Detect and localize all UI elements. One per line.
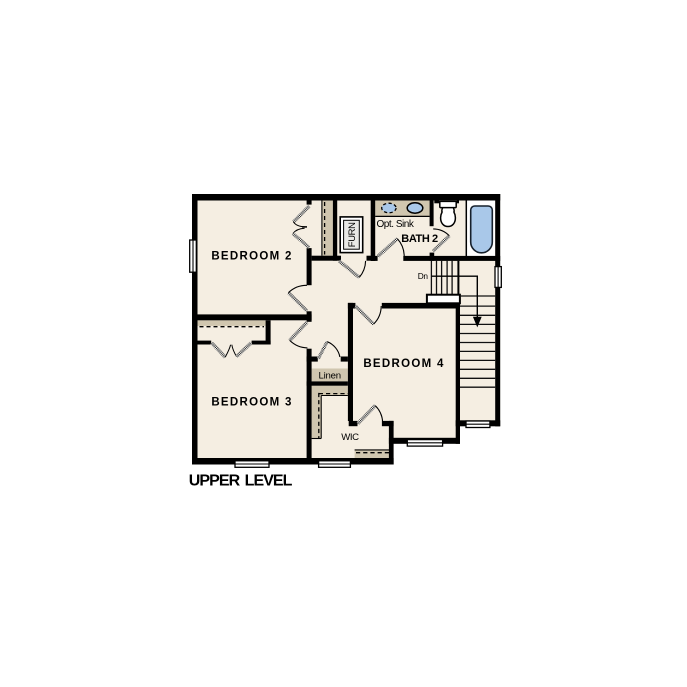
svg-text:Opt. Sink: Opt. Sink [377,219,415,230]
svg-text:UPPER LEVEL: UPPER LEVEL [189,473,293,490]
svg-text:FURN: FURN [346,222,357,247]
svg-text:WIC: WIC [341,432,359,443]
svg-text:BEDROOM 4: BEDROOM 4 [363,358,444,370]
svg-text:Dn: Dn [418,271,429,281]
svg-text:BATH 2: BATH 2 [401,233,438,245]
svg-text:BEDROOM 2: BEDROOM 2 [211,250,292,262]
svg-text:BEDROOM 3: BEDROOM 3 [211,396,292,408]
svg-text:Linen: Linen [318,370,340,381]
